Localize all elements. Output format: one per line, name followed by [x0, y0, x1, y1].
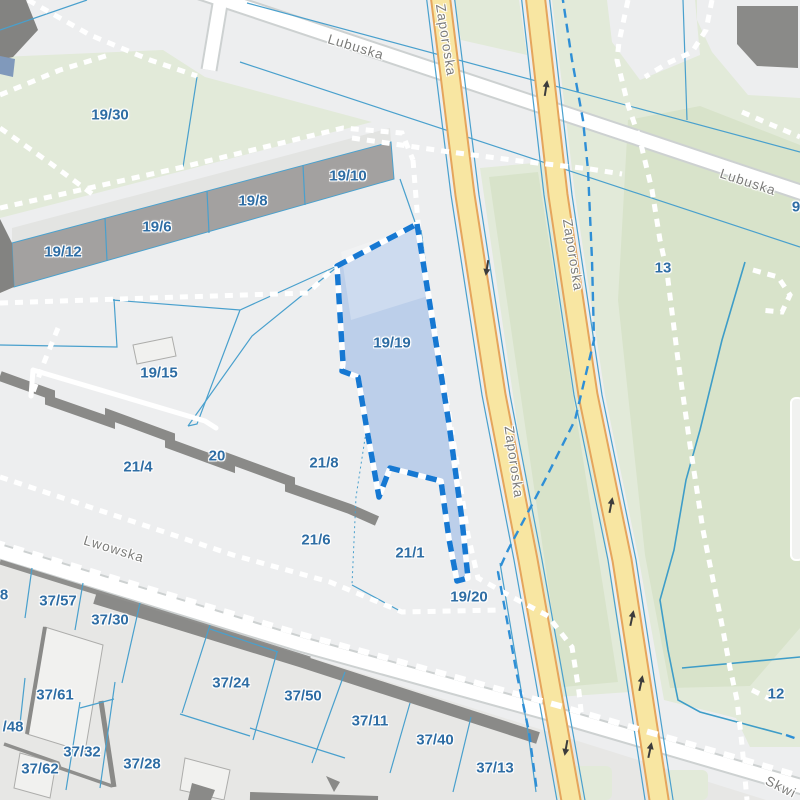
map-canvas[interactable]: 19/3019/1219/619/819/1019/1519/1921/4202…: [0, 0, 800, 800]
building-blue-roof: [0, 56, 15, 77]
map-graphics: [0, 0, 800, 800]
sports-field: [791, 398, 800, 560]
